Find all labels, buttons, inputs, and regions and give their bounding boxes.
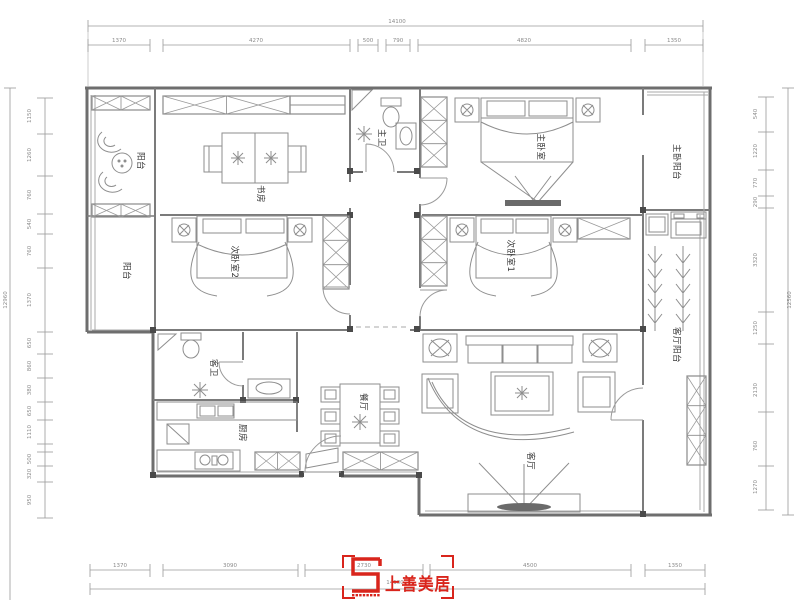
dim-label: 1260 [27, 148, 33, 162]
room-label-dining-room: 餐厅 [358, 393, 368, 411]
furniture [98, 90, 706, 512]
dim-label: 3090 [223, 563, 237, 569]
living-room-tv [497, 503, 551, 511]
dim-label: 14100 [388, 19, 406, 25]
dim-label: 650 [27, 337, 33, 348]
dim-label: 650 [27, 405, 33, 416]
dim-label: 1250 [753, 321, 759, 335]
room-label-living-room: 客厅 [525, 452, 536, 470]
dim-label: 1220 [753, 144, 759, 158]
dim-label: 380 [27, 384, 33, 395]
dim-label: 770 [753, 177, 759, 188]
dim-label: 1150 [27, 109, 33, 123]
room-label-balcony-left: 阳台 [121, 262, 132, 280]
dim-label: 3320 [753, 253, 759, 267]
brand-name: 上善美居 [385, 574, 451, 595]
room-label-master-bedroom: 主卧室 [535, 133, 546, 160]
dim-label: 500 [363, 38, 374, 44]
dim-label: 760 [27, 189, 33, 200]
door-swings [219, 144, 643, 472]
dim-label: 1270 [753, 480, 759, 494]
dim-label: 1350 [667, 38, 681, 44]
room-label-balcony-top-left: 阳台 [135, 152, 146, 170]
dim-label: 860 [27, 360, 33, 371]
room-label-master-balcony: 主卧阳台 [671, 144, 682, 180]
room-label-living-balcony: 客厅阳台 [671, 327, 682, 363]
dim-label: 790 [393, 38, 404, 44]
room-label-kitchen: 厨房 [237, 424, 248, 442]
room-label-bedroom-2: 次卧室2 [229, 246, 240, 279]
dim-label: 1370 [113, 563, 127, 569]
dim-label: 540 [753, 108, 759, 119]
dim-label: 320 [27, 468, 33, 479]
room-label-bedroom-1: 次卧室1 [505, 240, 516, 273]
dim-label: 1350 [668, 563, 682, 569]
master-bedroom-tv [505, 200, 561, 206]
dim-label: 4500 [523, 563, 537, 569]
dim-label: 290 [753, 196, 759, 207]
dim-label: 1370 [27, 293, 33, 307]
dim-label: 760 [27, 245, 33, 256]
logo-small-marks [352, 594, 380, 596]
floor-plan-page: 阳台书房主卫主卧室主卧阳台阳台次卧室2次卧室1客厅阳台客卫厨房餐厅客厅 1370… [0, 0, 800, 600]
window-glazing [91, 92, 708, 512]
dim-label: 760 [753, 440, 759, 451]
dim-label: 1370 [112, 38, 126, 44]
dim-label: 2730 [357, 563, 371, 569]
dim-label: 1110 [27, 425, 33, 439]
dim-label: 4820 [517, 38, 531, 44]
dim-label: 500 [27, 453, 33, 464]
room-label-guest-bath: 客卫 [208, 359, 219, 377]
dim-label: 2130 [753, 383, 759, 397]
room-label-master-bath: 主卫 [376, 129, 387, 147]
dim-label: 950 [27, 494, 33, 505]
room-label-study: 书房 [255, 185, 266, 203]
floor-plan-drawing: 阳台书房主卫主卧室主卧阳台阳台次卧室2次卧室1客厅阳台客卫厨房餐厅客厅 1370… [0, 0, 800, 600]
room-labels: 阳台书房主卫主卧室主卧阳台阳台次卧室2次卧室1客厅阳台客卫厨房餐厅客厅 [121, 129, 682, 470]
dim-label: 12960 [3, 291, 9, 309]
dim-label: 12560 [787, 291, 793, 309]
dim-label: 4270 [249, 38, 263, 44]
dim-label: 540 [27, 218, 33, 229]
walls [85, 88, 712, 515]
